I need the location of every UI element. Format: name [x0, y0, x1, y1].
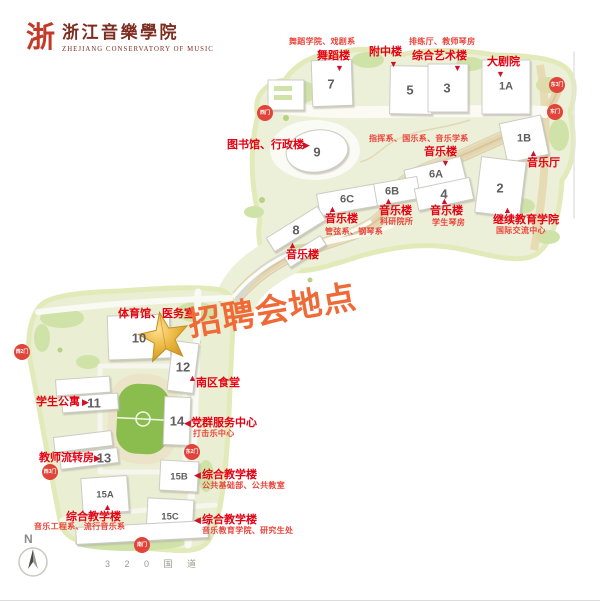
gate-badge-south: 南门	[134, 537, 150, 553]
label-teaching-building-15b: 综合教学楼	[202, 470, 257, 481]
logo-title: 浙江音樂學院	[62, 24, 214, 43]
building-number-12: 12	[176, 361, 190, 374]
building-number-10: 10	[132, 332, 146, 345]
label-library-admin-building: 图书馆、行政楼	[227, 140, 304, 151]
compass-icon	[19, 548, 47, 576]
label-dance-building: 舞蹈楼	[317, 51, 350, 62]
label-music-building-6c: 音乐楼	[325, 214, 358, 225]
logo-seal-icon: 浙	[26, 24, 55, 52]
gate-badge-east-2: 东2门	[184, 444, 200, 460]
label-south-dining-hall: 南区食堂	[196, 378, 240, 389]
building-number-5: 5	[406, 84, 413, 97]
building-number-2: 2	[496, 182, 503, 195]
label-grand-theater: 大剧院	[487, 57, 520, 68]
marker-right-icon: ▶	[303, 141, 310, 150]
note-public-education: 公共基础部、公共教室	[202, 482, 285, 490]
marker-down-icon: ▼	[335, 64, 344, 73]
logo-text: 浙江音樂學院 ZHEJIANG CONSERVATORY OF MUSIC	[62, 24, 214, 53]
label-music-building-8: 音乐楼	[286, 250, 319, 261]
label-affiliated-school-building: 附中楼	[369, 47, 402, 58]
note-music-education-college: 音乐教育学院、研究生处	[202, 527, 293, 535]
building-number-8: 8	[292, 224, 299, 237]
label-gym-clinic: 体育馆、医务室	[118, 309, 195, 320]
building-number-1b: 1B	[517, 134, 531, 145]
national-road-label: 3 2 0 国 道	[105, 557, 202, 570]
note-percussion-center: 打击乐中心	[193, 430, 235, 438]
gate-badge-west: 西门	[257, 105, 273, 121]
marker-left-icon: ◀	[194, 471, 201, 480]
note-music-engineering: 音乐工程系、流行音乐系	[34, 523, 125, 531]
building-number-15a: 15A	[96, 490, 113, 500]
label-continuing-education-college: 继续教育学院	[493, 215, 559, 226]
campus-map-page: 浙 浙江音樂學院 ZHEJIANG CONSERVATORY OF MUSIC …	[0, 0, 600, 601]
building-number-6c: 6C	[340, 195, 354, 206]
logo-subtitle: ZHEJIANG CONSERVATORY OF MUSIC	[62, 46, 214, 53]
logo: 浙 浙江音樂學院 ZHEJIANG CONSERVATORY OF MUSIC	[26, 24, 214, 53]
building-number-15c: 15C	[161, 512, 178, 522]
note-music-departments: 指挥系、国乐系、音乐学系	[369, 135, 469, 143]
building-number-4: 4	[440, 188, 447, 201]
note-research-institutes: 科研院所	[380, 218, 413, 226]
label-teacher-housing: 教师流转房	[39, 453, 94, 464]
compass-north-label: N	[24, 532, 33, 546]
gate-badge-west-2: 西2门	[14, 344, 30, 360]
note-student-piano-rooms: 学生琴房	[432, 219, 465, 227]
label-concert-hall: 音乐厅	[527, 158, 560, 169]
building-number-6a: 6A	[429, 170, 443, 181]
building-number-1a: 1A	[499, 82, 513, 93]
label-comprehensive-art-building: 综合艺术楼	[412, 51, 467, 62]
building-number-3: 3	[443, 82, 450, 95]
marker-down-icon: ▼	[389, 60, 398, 69]
note-dance-college: 舞蹈学院、戏剧系	[289, 38, 355, 46]
building-number-11: 11	[87, 397, 101, 410]
marker-left-icon: ◀	[194, 516, 201, 525]
note-orchestral-piano-depts: 管弦系、钢琴系	[325, 228, 383, 236]
note-rehearsal-hall: 排练厅、教师琴房	[409, 38, 475, 46]
marker-down-icon: ▼	[453, 64, 462, 73]
gate-badge-west-3: 西3门	[42, 464, 58, 480]
marker-left-icon: ◀	[184, 419, 191, 428]
building-number-13: 13	[97, 452, 111, 465]
building-number-9: 9	[313, 146, 320, 159]
gate-badge-east-3: 东3门	[549, 77, 565, 93]
building-number-6b: 6B	[385, 187, 399, 198]
marker-down-icon: ▼	[496, 70, 505, 79]
marker-down-icon: ▼	[441, 159, 450, 168]
label-music-building-6a: 音乐楼	[424, 147, 457, 158]
label-music-building-6b: 音乐楼	[379, 206, 412, 217]
gate-badge-east: 东门	[547, 104, 563, 120]
building-number-15b: 15B	[170, 472, 187, 482]
label-student-apartments: 学生公寓	[36, 397, 80, 408]
building-number-14: 14	[170, 415, 184, 428]
label-teaching-building-15c: 综合教学楼	[202, 515, 257, 526]
building-number-7: 7	[327, 78, 334, 91]
note-international-exchange-center: 国际交流中心	[496, 227, 546, 235]
label-party-service-center: 党群服务中心	[191, 418, 257, 429]
label-music-building-4: 音乐楼	[430, 206, 463, 217]
